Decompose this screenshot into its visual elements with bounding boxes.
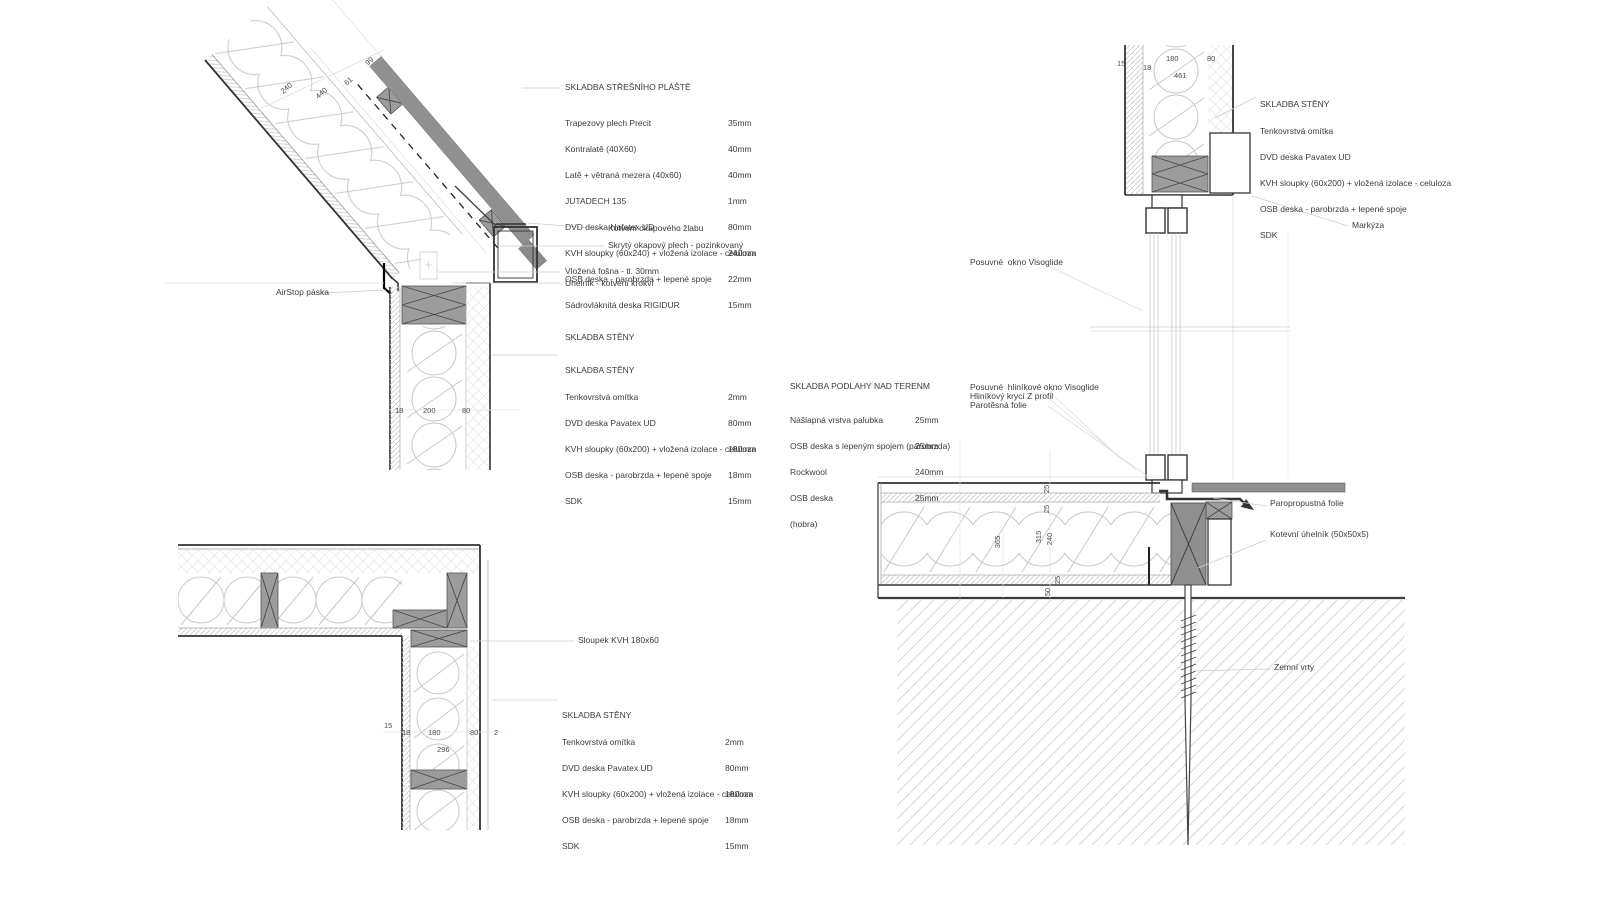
assembly-row: OSB deska s lepeným spojem (parobrzda)25… <box>790 442 943 451</box>
roof-assembly-title: SKLADBA STŘEŠNÍHO PLÁŠTĚ <box>565 83 756 92</box>
floor-assembly-list: SKLADBA PODLAHY NAD TERENM Nášlapná vrst… <box>790 365 943 537</box>
label-airstop: AirStop páska <box>276 288 329 297</box>
dim-floor-25b: 25 <box>1042 505 1051 513</box>
label-inserted-plank: Vložená fošna - tl. 30mm <box>565 267 659 276</box>
dim-floor-50: 50 <box>1043 588 1052 596</box>
label-hidden-flashing: Skrytý okapový plech - pozinkovaný <box>608 241 743 250</box>
assembly-row: Rockwool240mm <box>790 468 943 477</box>
dim-tr-80: 80 <box>1207 54 1215 63</box>
assembly-row: KVH sloupky (60x240) + vložená izolace -… <box>565 249 756 258</box>
dim-floor-25c: 25 <box>1053 576 1062 584</box>
dim-floor-365: 365 <box>993 536 1002 549</box>
awning-box <box>1210 133 1250 193</box>
assembly-row: Sádrovláknitá deska RIGIDUR15mm <box>565 301 756 310</box>
assembly-row: SDK15mm <box>565 497 756 506</box>
terrace-deck <box>1192 483 1345 492</box>
label-vapour-barrier: Parotěsná folie <box>970 401 1027 410</box>
assembly-row: OSB deska - parobrzda + lepené spoje18mm <box>565 471 756 480</box>
wall-assembly-list-bottom: SKLADBA STĚNY Tenkovrstvá omítka2mm DVD … <box>562 694 753 859</box>
dim-tr-461: 461 <box>1174 71 1187 80</box>
corner-timber <box>393 573 467 647</box>
dim-bl-180: 180 <box>428 728 441 737</box>
wall-corner-detail: 15 18 180 80 2 296 <box>178 545 574 830</box>
architectural-detail-sheet: 240 440 61 99 18 200 80 <box>0 0 1600 900</box>
floor-assembly-title: SKLADBA PODLAHY NAD TERENM <box>790 382 943 391</box>
dim-floor-315: 315 <box>1034 531 1043 544</box>
eave-wall <box>386 283 520 470</box>
soil-hatch <box>897 600 1405 845</box>
roof-eave-detail: 240 440 61 99 18 200 80 <box>165 0 604 470</box>
assembly-row: DVD deska Pavatex UD80mm <box>562 764 753 773</box>
timber-lintel <box>1152 156 1208 192</box>
assembly-row: DVD deska Pavatex UD <box>1260 153 1451 162</box>
dim-tr-15: 15 <box>1117 59 1125 68</box>
assembly-row: KVH sloupky (60x200) + vložená izolace -… <box>565 445 756 454</box>
dim-floor-25a: 25 <box>1042 485 1051 493</box>
label-gutter-anchor: Kotvení okapového žlabu <box>608 224 703 233</box>
dim-tr-180: 180 <box>1166 54 1179 63</box>
timber-stud <box>261 573 278 628</box>
label-awning: Markýza <box>1352 221 1384 230</box>
assembly-row: KVH sloupky (60x200) + vložená izolace -… <box>1260 179 1451 188</box>
wall-assembly-list-mid: SKLADBA STĚNY Tenkovrstvá omítka2mm DVD … <box>565 349 756 514</box>
dim-roof-61: 61 <box>342 75 354 87</box>
assembly-row: JUTADECH 1351mm <box>565 197 756 206</box>
assembly-row: (hobra) <box>790 520 943 529</box>
dim-wall-80: 80 <box>462 406 470 415</box>
label-angle-bracket: Úhelník - kotvení krokví <box>565 279 654 288</box>
assembly-row: Trapezovy plech Precit35mm <box>565 119 756 128</box>
assembly-row: SDK <box>1260 231 1451 240</box>
assembly-row: Nášlapná vrstva palubka25mm <box>790 416 943 425</box>
dim-wall-18: 18 <box>395 406 403 415</box>
window-glass-lines <box>1150 233 1180 455</box>
label-post-kvh: Sloupek KVH 180x60 <box>578 636 659 645</box>
assembly-row: Kontralatě (40X60)40mm <box>565 145 756 154</box>
assembly-row: Tenkovrstvá omítka2mm <box>562 738 753 747</box>
assembly-row: OSB deska - parobrzda + lepené spoje <box>1260 205 1451 214</box>
assembly-row: Latě + větraná mezera (40x60)40mm <box>565 171 756 180</box>
label-vapour-permeable-foil: Paropropustná folie <box>1270 499 1344 508</box>
dim-wall-200: 200 <box>423 406 436 415</box>
timber-plate <box>402 286 466 324</box>
label-anchor-angle: Kotevní úhelník (50x50x5) <box>1270 530 1369 539</box>
dim-bl-15: 15 <box>384 721 392 730</box>
assembly-row: OSB deska - parobrzda + lepené spoje18mm <box>562 816 753 825</box>
dim-bl-2: 2 <box>494 728 498 737</box>
timber-stud <box>411 770 467 789</box>
assembly-row: KVH sloupky (60x200) + vložená izolace -… <box>562 790 753 799</box>
dim-tr-18: 18 <box>1143 63 1151 72</box>
assembly-row: DVD deska Pavatex UD80mm <box>565 419 756 428</box>
assembly-row: Tenkovrstvá omítka <box>1260 127 1451 136</box>
assembly-row: OSB deska25mm <box>790 494 943 503</box>
dim-floor-240: 240 <box>1045 533 1054 546</box>
wall-assembly-title: SKLADBA STĚNY <box>562 711 753 720</box>
dim-bl-80: 80 <box>470 728 478 737</box>
dim-bl-18: 18 <box>402 728 410 737</box>
label-ground-screws: Zemní vrty <box>1274 663 1314 672</box>
wall-assembly-heading: SKLADBA STĚNY <box>565 333 634 342</box>
dim-bl-296: 296 <box>437 745 450 754</box>
label-sliding-window: Posuvné okno Visoglide <box>970 258 1063 267</box>
assembly-row: Tenkovrstvá omítka2mm <box>565 393 756 402</box>
wall-assembly-title: SKLADBA STĚNY <box>1260 100 1451 109</box>
assembly-row: SDK15mm <box>562 842 753 851</box>
wall-assembly-title: SKLADBA STĚNY <box>565 366 756 375</box>
